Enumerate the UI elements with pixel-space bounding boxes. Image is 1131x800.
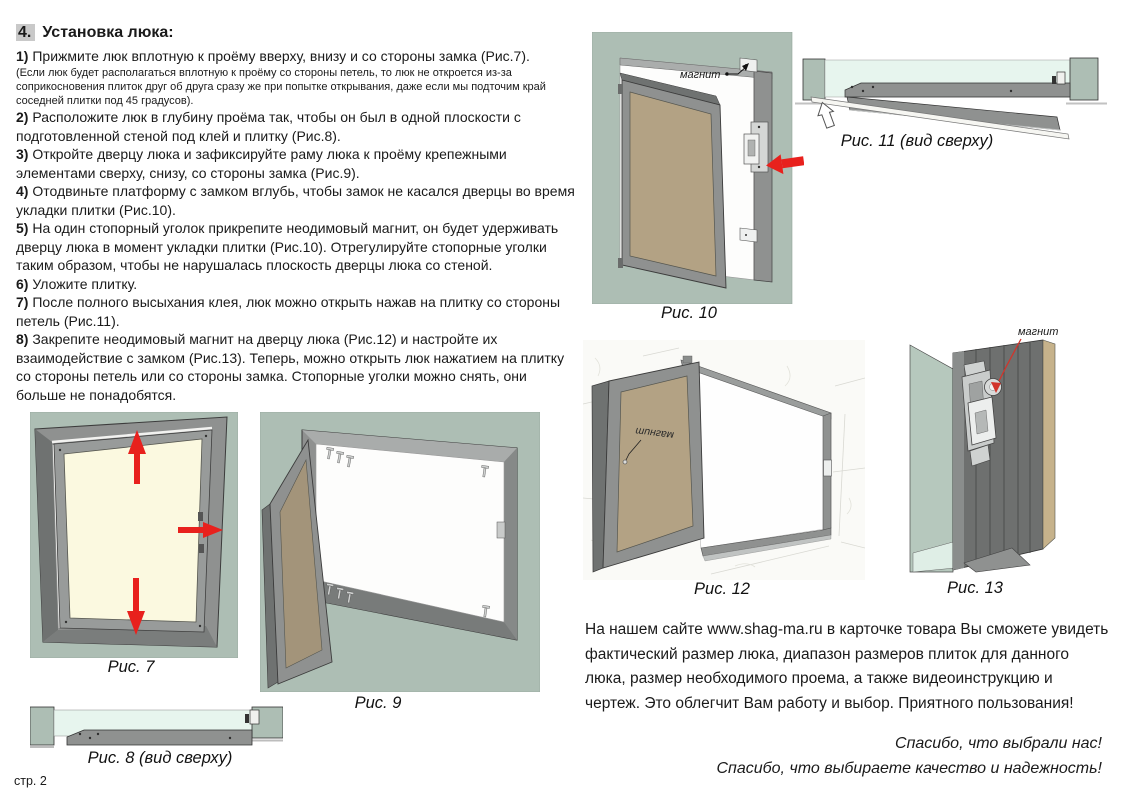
figure-12-caption: Рис. 12 [694, 580, 750, 599]
instruction-page: 4.Установка люка: 1) Прижмите люк вплотн… [0, 0, 1131, 800]
magnet-label: магнит [680, 69, 720, 81]
step-1-note: (Если люк будет располагаться вплотную к… [16, 66, 576, 109]
figure-8-illustration [30, 704, 283, 750]
website-paragraph: На нашем сайте www.shag-ma.ru в карточке… [585, 618, 1109, 716]
latch-mark [198, 512, 203, 521]
figure-10-illustration: магнит [592, 32, 804, 304]
figure-11-illustration [795, 40, 1107, 142]
section-heading: 4.Установка люка: [16, 24, 576, 42]
step-8: 8) Закрепите неодимовый магнит на дверцу… [16, 330, 576, 404]
latch [497, 522, 505, 538]
figure-13-illustration: магнит [906, 323, 1058, 575]
step-4: 4) Отодвиньте платформу с замком вглубь,… [16, 182, 576, 219]
step-3: 3) Откройте дверцу люка и зафиксируйте р… [16, 145, 576, 182]
section-number: 4. [16, 24, 35, 41]
thanks-line-2: Спасибо, что выбираете качество и надежн… [585, 760, 1102, 778]
latch [824, 460, 832, 476]
step-7: 7) После полного высыхания клея, люк мож… [16, 293, 576, 330]
step-5: 5) На один стопорный уголок прикрепите н… [16, 219, 576, 275]
step-6: 6) Уложите плитку. [16, 275, 576, 294]
section-title: Установка люка: [42, 24, 173, 41]
figure-13-caption: Рис. 13 [947, 579, 1003, 598]
figure-9-caption: Рис. 9 [355, 694, 402, 713]
figure-9-illustration [260, 412, 540, 692]
latch-mark [199, 544, 204, 553]
figure-7-illustration [30, 412, 238, 658]
figure-12-illustration: магнит [583, 340, 865, 580]
magnet-dot [623, 460, 627, 464]
magnet-label: магнит [1018, 326, 1058, 338]
figure-10-caption: Рис. 10 [661, 304, 717, 323]
step-2: 2) Расположите люк в глубину проёма так,… [16, 108, 576, 145]
figure-7-caption: Рис. 7 [108, 658, 155, 677]
installation-instructions: 4.Установка люка: 1) Прижмите люк вплотн… [16, 24, 576, 404]
step-1: 1) Прижмите люк вплотную к проёму вверху… [16, 47, 576, 66]
figure-11-caption: Рис. 11 (вид сверху) [841, 132, 994, 151]
stopper-angle [740, 228, 757, 242]
page-number: стр. 2 [14, 774, 47, 788]
thanks-line-1: Спасибо, что выбрали нас! [585, 735, 1102, 753]
figure-8-caption: Рис. 8 (вид сверху) [88, 749, 233, 768]
